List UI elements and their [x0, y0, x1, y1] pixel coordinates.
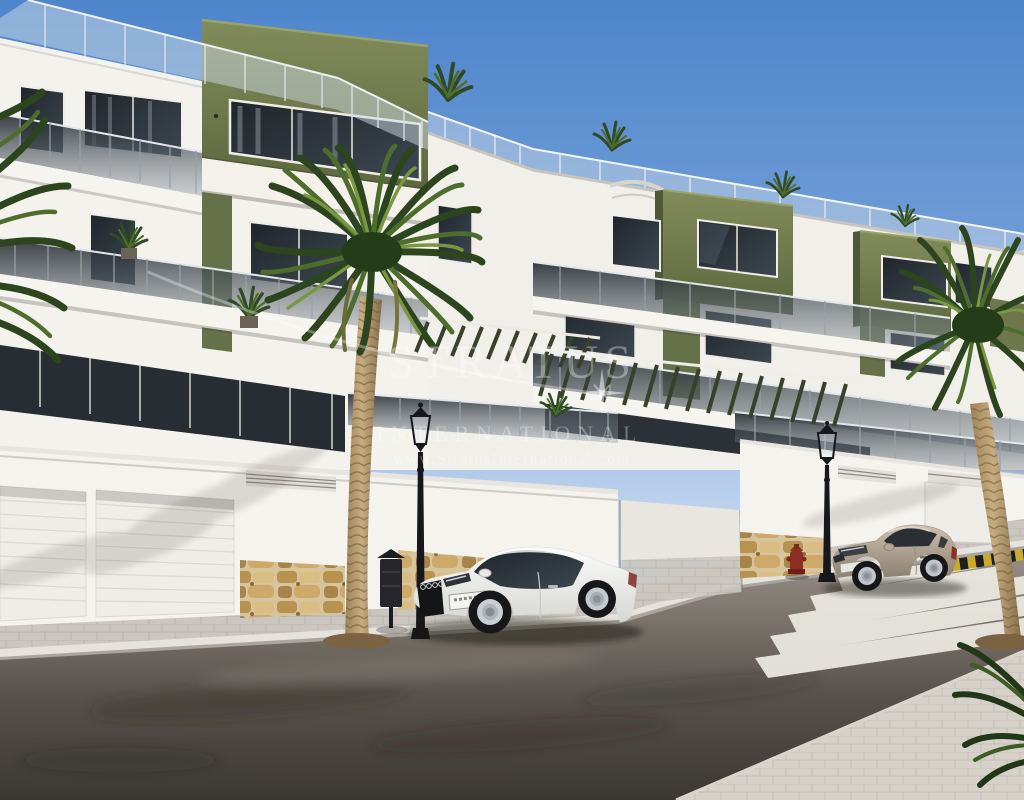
watermark-url: www.StratusInternational.com: [393, 451, 630, 468]
watermark-subtitle: INTERNATIONAL: [377, 421, 644, 446]
scene-render: STRATUS INTERNATIONAL www.StratusInterna…: [0, 0, 1024, 800]
stone-wainscot: [240, 560, 345, 618]
render-image: STRATUS INTERNATIONAL www.StratusInterna…: [0, 0, 1024, 800]
window: [612, 215, 660, 271]
watermark-brand: STRATUS: [387, 336, 637, 389]
driveway-ramp: [620, 500, 742, 606]
stone-wainscot: [740, 532, 824, 578]
